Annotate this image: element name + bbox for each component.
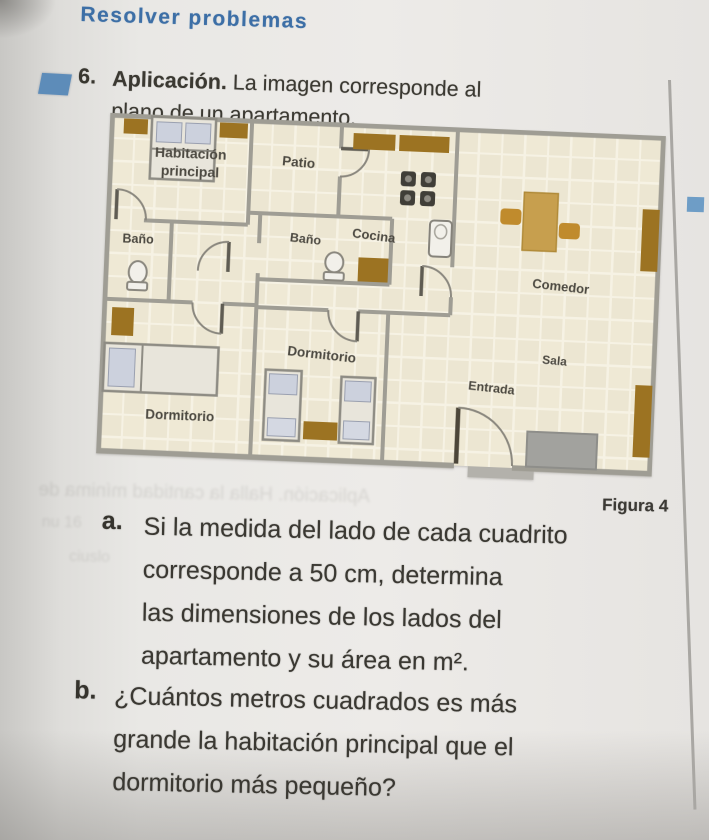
center-bedroom-bed — [263, 370, 302, 441]
page-margin-blue-tab — [687, 197, 705, 213]
sideboard — [632, 385, 652, 458]
question-a-letter: a. — [102, 507, 123, 536]
room-label-bath-left: Baño — [122, 231, 154, 246]
kitchen-counter — [399, 135, 450, 153]
nightstand — [111, 307, 134, 336]
question-a-text: Si la medida del lado de cada cuadrito c… — [141, 506, 568, 687]
dining-chair — [500, 208, 522, 225]
room-label-living: Sala — [542, 353, 568, 369]
question-b-text: ¿Cuántos metros cuadrados es más grande … — [112, 675, 518, 812]
center-bedroom-bed — [339, 377, 376, 444]
floor-plan-figure: Habitación principal Patio Cocina Baño B… — [96, 113, 666, 488]
question-b-letter: b. — [74, 676, 97, 705]
room-label-bedroom-left: Dormitorio — [145, 407, 215, 425]
problem-bullet-square — [38, 73, 72, 96]
room-label-main-bedroom: Habitación — [155, 144, 227, 163]
dining-table — [522, 192, 558, 251]
bath-counter — [358, 257, 389, 282]
textbook-page-photo: Resolver problemas 6. Aplicación. La ima… — [0, 0, 709, 840]
bleed-through-text: nu 16 — [42, 513, 82, 532]
floor-plan: Habitación principal Patio Cocina Baño B… — [98, 115, 664, 485]
sofa — [526, 432, 597, 470]
entrance-door-leaf — [456, 408, 458, 464]
nightstand — [303, 421, 338, 440]
nightstand — [219, 122, 248, 138]
kitchen-sink — [429, 220, 452, 257]
question-b-line: dormitorio más pequeño? — [112, 761, 516, 812]
room-label-main-bedroom: principal — [161, 162, 220, 180]
nightstand — [124, 118, 149, 134]
problem-number: 6. — [78, 64, 96, 89]
problem-statement-line1: La imagen corresponde al — [233, 70, 482, 101]
problem-lead: Aplicación. — [112, 67, 227, 94]
bleed-through-text: ciuslo — [69, 548, 110, 567]
sideboard — [640, 209, 660, 272]
page-content: Resolver problemas 6. Aplicación. La ima… — [0, 0, 709, 840]
page-title: Resolver problemas — [80, 3, 308, 34]
room-label-patio: Patio — [282, 153, 316, 171]
toilet-left-bath — [127, 261, 148, 291]
dining-chair — [559, 223, 581, 240]
kitchen-counter — [353, 133, 396, 151]
bleed-through-text: Aplicación. Halla la cantidad mínima de — [38, 479, 370, 508]
toilet-center-bath — [324, 252, 345, 281]
left-bedroom-bed — [103, 343, 219, 396]
